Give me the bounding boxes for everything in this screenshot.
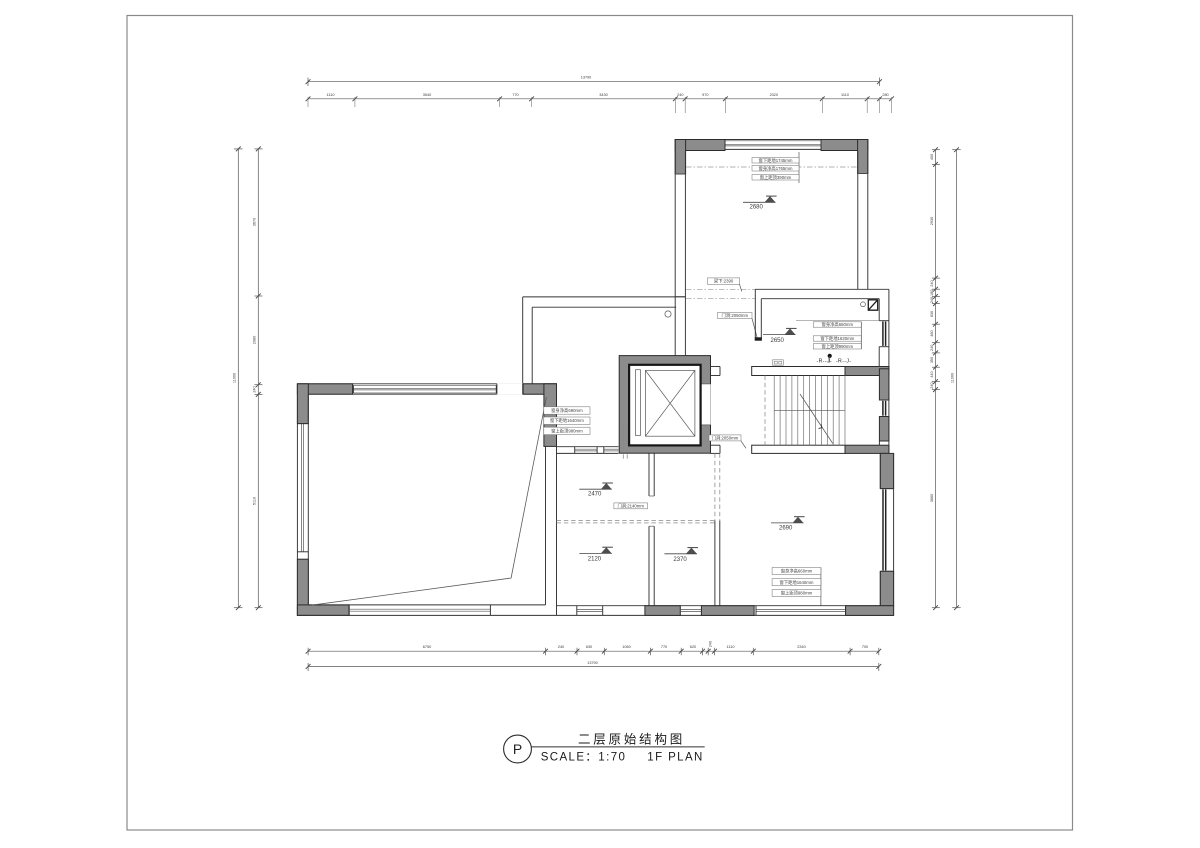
svg-text:700: 700: [862, 645, 868, 649]
svg-text:630: 630: [586, 645, 592, 649]
svg-text:240: 240: [253, 386, 257, 392]
svg-text:2080: 2080: [253, 336, 257, 344]
svg-text:240: 240: [930, 345, 934, 351]
svg-text:350: 350: [930, 357, 934, 363]
svg-text:13790: 13790: [581, 76, 592, 80]
svg-text:P: P: [513, 741, 522, 757]
svg-text:窗上距顶990mm: 窗上距顶990mm: [822, 343, 854, 350]
svg-text:180: 180: [930, 290, 934, 296]
svg-text:2120: 2120: [588, 557, 602, 563]
svg-text:二层原始结构图: 二层原始结构图: [578, 732, 685, 747]
svg-text:13790: 13790: [587, 661, 598, 665]
svg-text:门洞:2050mm: 门洞:2050mm: [712, 434, 739, 441]
svg-text:2320: 2320: [770, 93, 778, 97]
svg-text:窗下距地1640mm: 窗下距地1640mm: [550, 417, 584, 424]
svg-text:3660: 3660: [930, 494, 934, 502]
svg-text:窗身净高660mm: 窗身净高660mm: [781, 568, 813, 575]
svg-text:240: 240: [930, 280, 934, 286]
svg-text:3430: 3430: [599, 93, 607, 97]
svg-text:2650: 2650: [771, 338, 785, 344]
svg-text:440: 440: [930, 371, 934, 377]
svg-text:门洞:2140mm: 门洞:2140mm: [617, 502, 644, 509]
svg-text:窗下距地1640mm: 窗下距地1640mm: [780, 579, 814, 586]
svg-text:2930: 2930: [930, 217, 934, 225]
svg-text:11000: 11000: [951, 373, 955, 383]
svg-text:窗下距地1630mm: 窗下距地1630mm: [820, 335, 854, 342]
svg-text:630: 630: [930, 311, 934, 317]
svg-text:SCALE：1:70: SCALE：1:70: [541, 752, 627, 764]
svg-text:2370: 2370: [673, 557, 687, 563]
svg-text:窗上距顶390mm: 窗上距顶390mm: [760, 174, 792, 181]
svg-text:2340: 2340: [797, 645, 805, 649]
svg-text:窗身净高1765mm: 窗身净高1765mm: [759, 165, 793, 172]
svg-text:1110: 1110: [327, 93, 335, 97]
svg-text:3670: 3670: [253, 218, 257, 226]
svg-text:240: 240: [930, 297, 934, 303]
svg-text:620: 620: [690, 645, 696, 649]
svg-text:11000: 11000: [233, 373, 237, 383]
svg-text:-R--J- -R--J-: -R--J- -R--J-: [817, 359, 852, 365]
svg-text:门洞:2050mm: 门洞:2050mm: [722, 312, 749, 319]
svg-text:2680: 2680: [750, 205, 764, 211]
svg-text:1110: 1110: [841, 93, 849, 97]
svg-text:1F PLAN: 1F PLAN: [647, 752, 703, 764]
svg-text:窗身净高660mm: 窗身净高660mm: [822, 321, 854, 328]
svg-text:240: 240: [930, 382, 934, 388]
svg-text:窗下距地1745mm: 窗下距地1745mm: [759, 157, 793, 164]
svg-text:窗身净高690mm: 窗身净高690mm: [551, 407, 583, 414]
svg-text:2690: 2690: [779, 525, 793, 531]
svg-text:1060: 1060: [622, 645, 630, 649]
svg-text:梁下:2390: 梁下:2390: [714, 278, 734, 285]
svg-text:970: 970: [702, 93, 708, 97]
svg-text:240: 240: [709, 641, 713, 647]
svg-text:400: 400: [930, 154, 934, 160]
svg-text:2470: 2470: [588, 492, 602, 498]
svg-text:6750: 6750: [423, 645, 431, 649]
svg-text:3540: 3540: [423, 93, 431, 97]
svg-text:1110: 1110: [727, 645, 735, 649]
svg-text:240: 240: [677, 93, 683, 97]
svg-text:5110: 5110: [253, 497, 257, 505]
svg-text:460: 460: [930, 330, 934, 336]
svg-text:770: 770: [661, 645, 667, 649]
svg-text:窗上距顶980mm: 窗上距顶980mm: [551, 427, 583, 434]
svg-text:窗上距顶980mm: 窗上距顶980mm: [781, 590, 813, 597]
svg-text:240: 240: [558, 645, 564, 649]
svg-text:280: 280: [882, 93, 888, 97]
svg-text:770: 770: [512, 93, 518, 97]
